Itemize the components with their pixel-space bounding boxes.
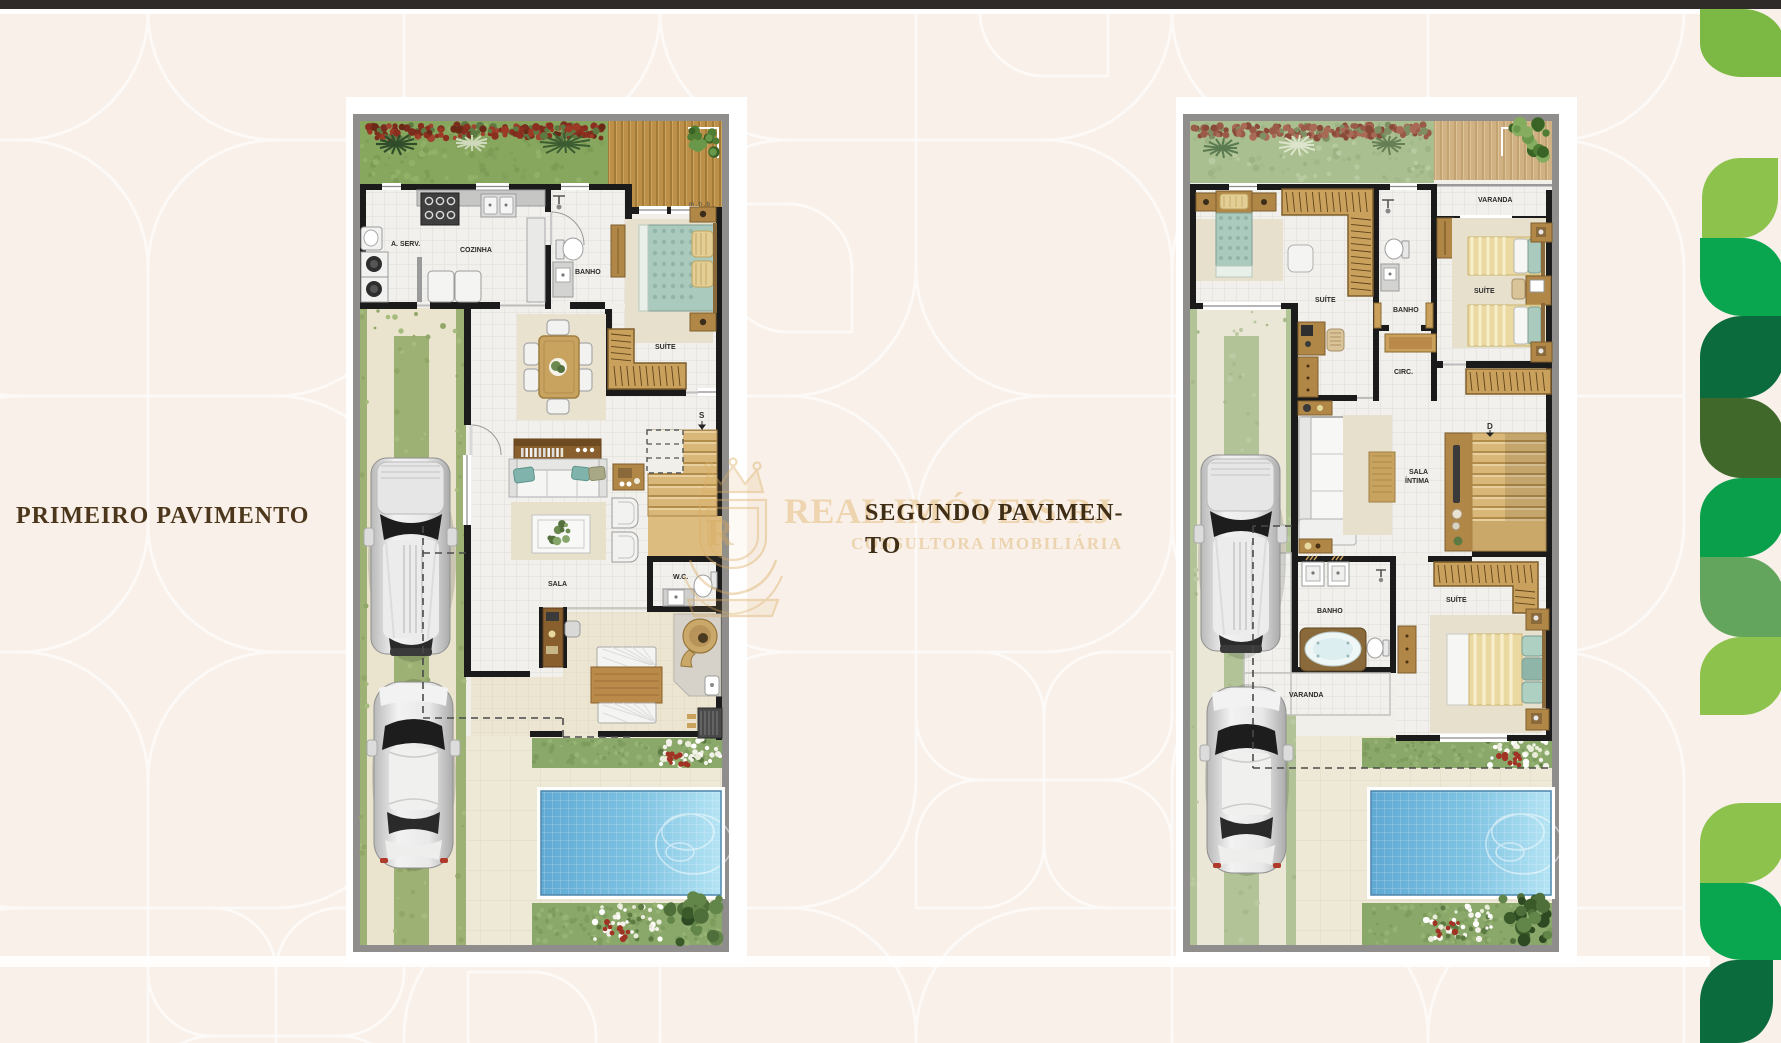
svg-text:A. SERV.: A. SERV. bbox=[391, 241, 420, 248]
svg-text:VARANDA: VARANDA bbox=[1478, 197, 1512, 204]
svg-text:SUÍTE: SUÍTE bbox=[1315, 295, 1336, 304]
svg-text:SUÍTE: SUÍTE bbox=[1446, 595, 1467, 604]
svg-text:COZINHA: COZINHA bbox=[460, 247, 492, 254]
svg-text:SALA: SALA bbox=[1409, 469, 1428, 476]
svg-text:R: R bbox=[706, 512, 734, 554]
svg-text:SEGUNDO PAVIMEN-: SEGUNDO PAVIMEN- bbox=[865, 500, 1123, 526]
svg-text:ÍNTIMA: ÍNTIMA bbox=[1405, 476, 1429, 485]
svg-text:TO: TO bbox=[865, 533, 901, 559]
svg-text:SALA: SALA bbox=[548, 581, 567, 588]
svg-text:BANHO: BANHO bbox=[575, 269, 601, 276]
svg-text:VARANDA: VARANDA bbox=[1289, 692, 1323, 699]
svg-text:S: S bbox=[699, 411, 705, 420]
svg-text:CIRC.: CIRC. bbox=[1394, 369, 1413, 376]
svg-text:PRIMEIRO PAVIMENTO: PRIMEIRO PAVIMENTO bbox=[16, 503, 309, 529]
svg-text:SUÍTE: SUÍTE bbox=[1474, 286, 1495, 295]
svg-text:BANHO: BANHO bbox=[1393, 307, 1419, 314]
svg-text:SUÍTE: SUÍTE bbox=[655, 342, 676, 351]
svg-text:D: D bbox=[1487, 422, 1493, 431]
svg-text:BANHO: BANHO bbox=[1317, 608, 1343, 615]
